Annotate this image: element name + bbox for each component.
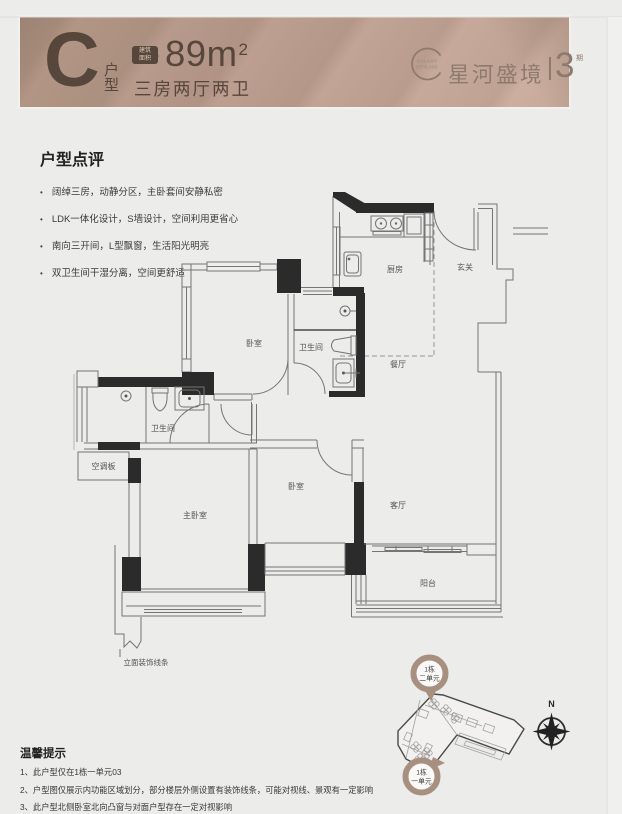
svg-text:卫生间: 卫生间 (299, 342, 323, 352)
svg-text:客厅: 客厅 (390, 500, 406, 510)
svg-text:1栋: 1栋 (424, 665, 435, 674)
svg-text:N: N (548, 699, 555, 709)
svg-text:一单元: 一单元 (411, 777, 432, 786)
svg-text:餐厅: 餐厅 (390, 360, 406, 369)
svg-text:卫生间: 卫生间 (151, 423, 175, 433)
svg-text:空调板: 空调板 (92, 461, 116, 471)
svg-text:阳台: 阳台 (420, 578, 436, 588)
svg-text:玄关: 玄关 (457, 262, 473, 272)
svg-text:厨房: 厨房 (387, 264, 403, 274)
svg-text:二单元: 二单元 (419, 674, 440, 683)
svg-text:卧室: 卧室 (246, 338, 262, 348)
svg-text:卧室: 卧室 (288, 481, 304, 491)
svg-text:主卧室: 主卧室 (183, 510, 207, 520)
svg-text:立面装饰线条: 立面装饰线条 (124, 657, 169, 667)
svg-text:1栋: 1栋 (416, 768, 427, 777)
